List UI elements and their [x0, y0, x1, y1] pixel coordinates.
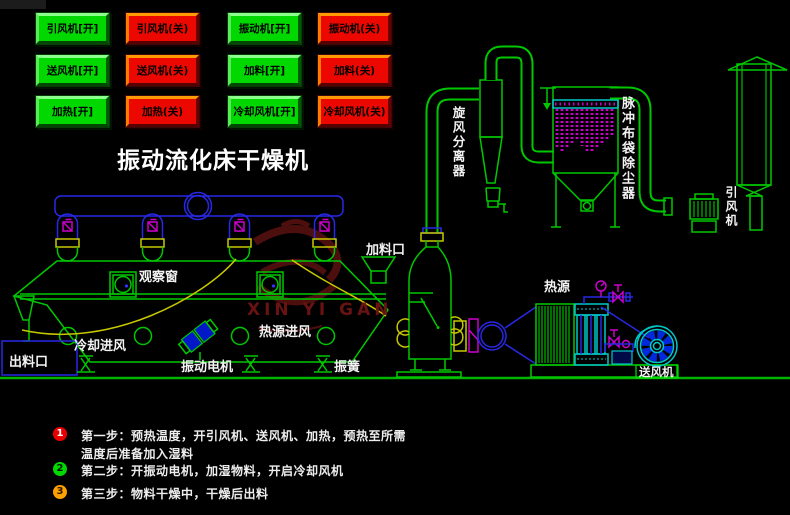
watermark-text: XIN YI GAN	[247, 300, 392, 320]
label-heat-air-inlet: 热源进风	[259, 326, 311, 340]
spring-support	[242, 356, 260, 372]
step-2-badge: 2	[53, 462, 67, 476]
label-induced-draft-fan: 引风机	[725, 186, 737, 228]
step-1-text-line-2: 温度后准备加入湿料	[81, 445, 194, 462]
pressure-gauge-icon	[596, 281, 606, 297]
spring-support	[314, 356, 332, 372]
riser-duct	[228, 214, 251, 261]
label-pulse-bag-filter: 脉冲布袋除尘器	[620, 96, 633, 201]
label-vibration-spring: 振簧	[334, 361, 360, 375]
label-observation-window: 观察窗	[139, 271, 178, 285]
step-2-text: 第二步：开振动电机，加湿物料，开启冷却风机	[81, 462, 344, 479]
feed-hopper	[362, 257, 395, 283]
valve-icon	[609, 330, 630, 348]
label-vibration-motor: 振动电机	[181, 361, 233, 375]
step-1-badge: 1	[53, 427, 67, 441]
hmi-screen: 引风机[开] 引风机(关) 振动机[开] 振动机(关) 送风机[开] 送风机(关…	[0, 0, 790, 515]
label-discharge-port: 出料口	[9, 356, 48, 370]
blower-fan-drawing	[635, 326, 677, 366]
label-cyclone-separator: 旋风分离器	[451, 106, 464, 179]
label-feed-port: 加料口	[366, 244, 405, 258]
step-3-badge: 3	[53, 485, 67, 499]
spring-support	[77, 356, 95, 372]
scrubber-drawing	[397, 240, 463, 377]
induced-draft-fan-drawing	[690, 57, 787, 232]
baghouse-drawing	[540, 87, 672, 227]
label-blower-fan: 送风机	[639, 366, 674, 379]
cyclone-drawing	[421, 52, 554, 241]
step-1-text-line-1: 第一步：预热温度，开引风机、送风机、加热，预热至所需	[81, 427, 406, 444]
valve-icon	[613, 285, 623, 302]
dryer-drawing	[2, 193, 395, 376]
label-heat-source: 热源	[544, 281, 570, 295]
vibration-motor-drawing	[178, 318, 219, 355]
filter-bags	[557, 109, 612, 153]
riser-duct	[56, 214, 79, 261]
observation-window	[110, 272, 136, 297]
label-cooling-air-inlet: 冷却进风	[74, 340, 126, 354]
step-3-text: 第三步：物料干燥中，干燥后出料	[81, 485, 269, 502]
riser-duct	[141, 214, 164, 261]
